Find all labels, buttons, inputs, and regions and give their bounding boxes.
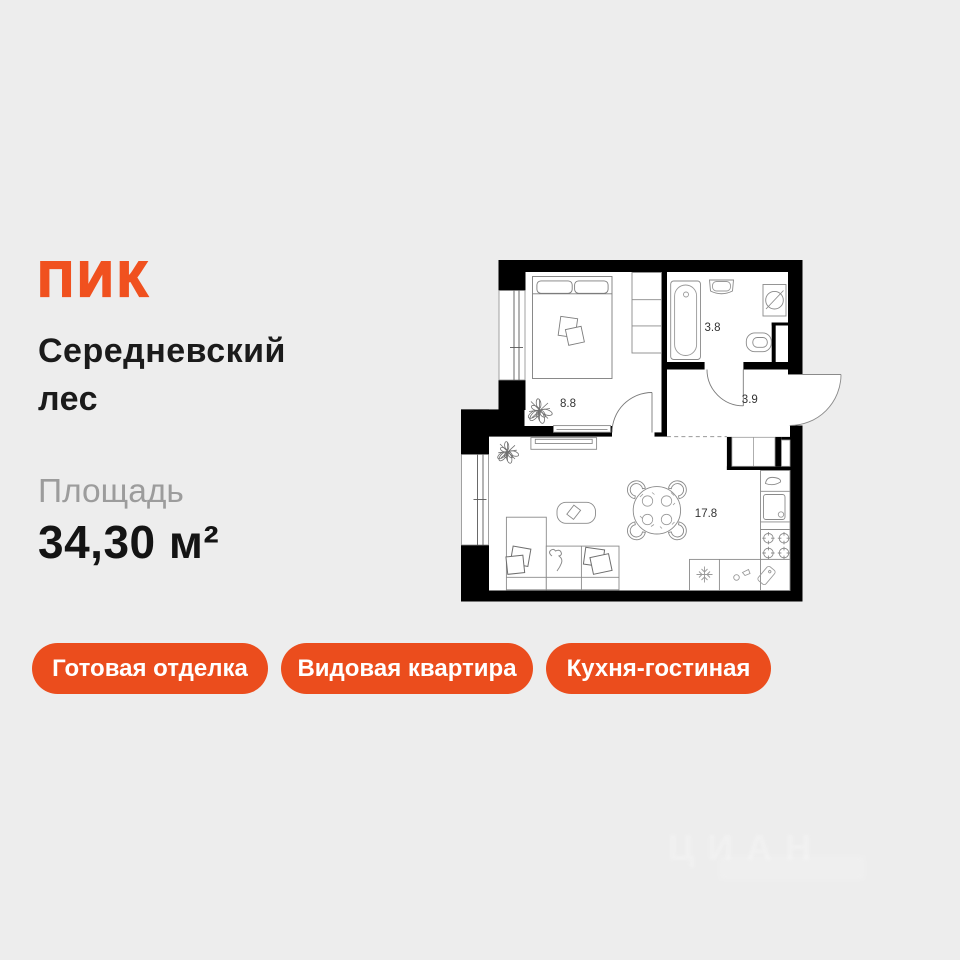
svg-text:3.9: 3.9 — [742, 394, 758, 406]
svg-text:3.8: 3.8 — [705, 322, 721, 334]
svg-text:17.8: 17.8 — [695, 508, 717, 520]
svg-text:8.8: 8.8 — [560, 398, 576, 410]
